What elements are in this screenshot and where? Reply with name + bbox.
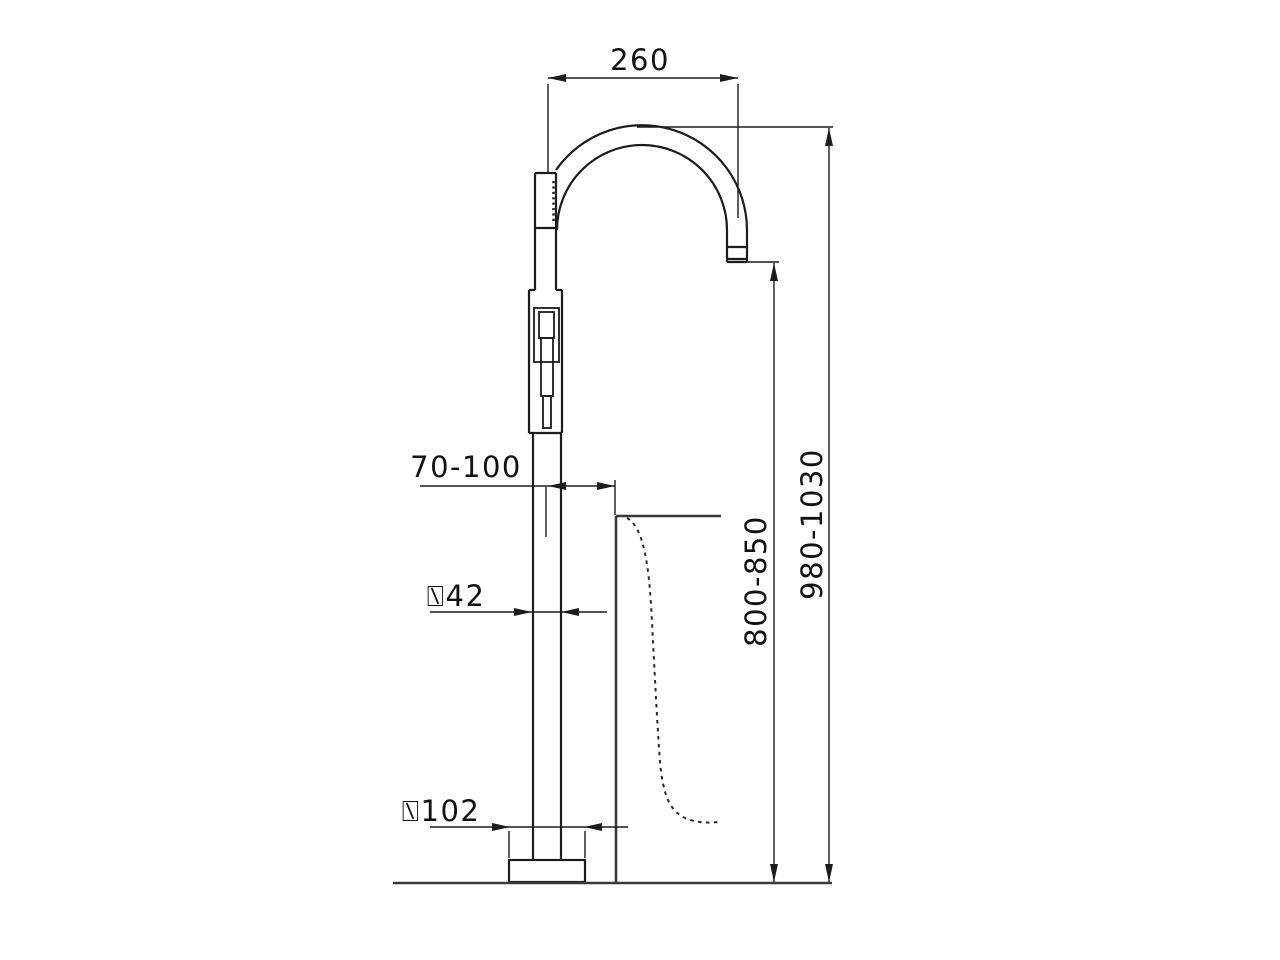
spout-inner-arc bbox=[557, 145, 727, 262]
riser-column bbox=[533, 433, 561, 860]
arrowhead-right bbox=[720, 74, 738, 82]
arrowhead-up bbox=[825, 128, 833, 146]
base-plate bbox=[509, 860, 585, 882]
dimension-tub-offset: 70-100 bbox=[410, 450, 615, 537]
handle-collar bbox=[534, 308, 559, 362]
dimension-label-base-diameter: ⍂102 bbox=[402, 794, 481, 828]
arrowhead-down bbox=[825, 864, 833, 882]
bathtub-section bbox=[616, 516, 721, 882]
arrowhead-right-tip bbox=[492, 823, 510, 831]
handle-stem bbox=[541, 338, 553, 396]
arrowhead-up bbox=[770, 263, 778, 281]
dimension-total-height: 980-1030 bbox=[637, 127, 833, 882]
dimension-body-diameter: ⍂42 bbox=[427, 579, 607, 616]
spout-outlet-tip bbox=[727, 247, 747, 262]
dimension-label-spout-reach: 260 bbox=[610, 43, 670, 77]
arrowhead-left bbox=[548, 74, 566, 82]
dimension-label-total-height: 980-1030 bbox=[795, 448, 829, 600]
faucet-outline bbox=[393, 125, 832, 883]
dimension-label-tub-offset: 70-100 bbox=[410, 450, 522, 484]
handle-lower-stem bbox=[543, 396, 551, 428]
wand-body bbox=[535, 173, 556, 290]
arrowhead-left-tip bbox=[561, 608, 579, 616]
hand-shower-wand bbox=[535, 173, 556, 290]
gooseneck-spout bbox=[556, 125, 747, 262]
dimension-outlet-height: 800-850 bbox=[739, 262, 779, 882]
dimension-label-body-diameter: ⍂42 bbox=[427, 579, 486, 613]
arrowhead-right-tip bbox=[514, 608, 532, 616]
faucet-dimension-drawing: 260 980-1030 800-850 70-100 bbox=[0, 0, 1280, 960]
handle-top-block bbox=[539, 312, 554, 338]
arrowhead-left-tip bbox=[584, 823, 602, 831]
arrowhead-down bbox=[770, 864, 778, 882]
technical-drawing-page: 260 980-1030 800-850 70-100 bbox=[0, 0, 1280, 960]
arrowhead-right bbox=[597, 482, 615, 490]
dimension-spout-reach: 260 bbox=[548, 43, 738, 218]
dimension-base-diameter: ⍂102 bbox=[402, 794, 628, 858]
arrowhead-left bbox=[548, 482, 566, 490]
bathtub-inner-profile bbox=[627, 518, 720, 822]
dimension-label-outlet-height: 800-850 bbox=[739, 515, 773, 647]
mixer-handle bbox=[534, 308, 559, 428]
